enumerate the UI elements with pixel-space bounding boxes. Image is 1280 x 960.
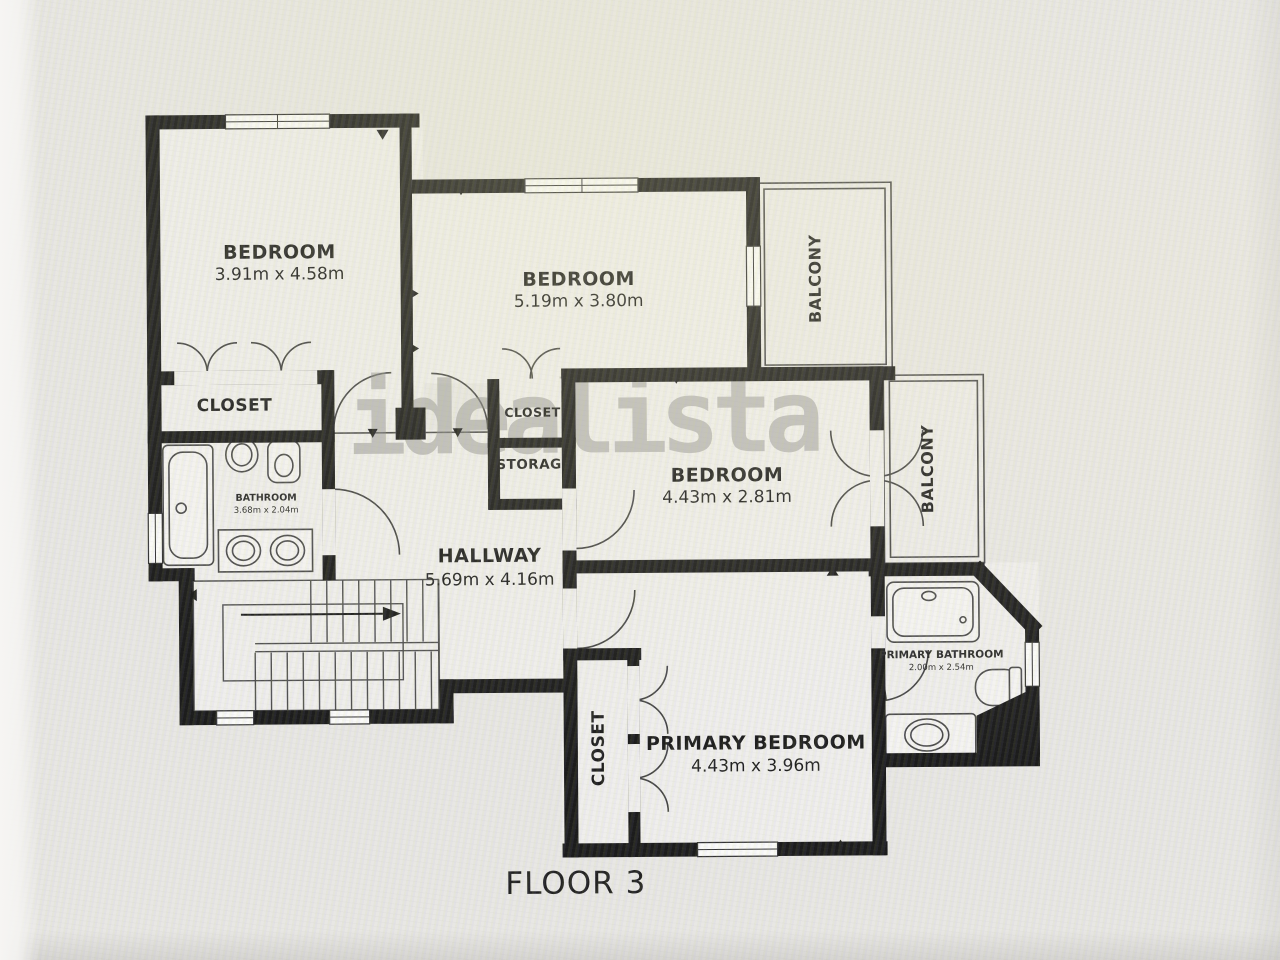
- bathtub-icon: [163, 445, 214, 565]
- bedroom2-window: [525, 178, 638, 193]
- stairs-window-right: [330, 710, 370, 724]
- bedroom1-window: [225, 114, 329, 129]
- balcony-side-label: BALCONY: [918, 425, 938, 514]
- bedroom2-label: BEDROOM: [522, 268, 635, 291]
- bedroom3-dims: 4.43m x 2.81m: [662, 487, 792, 508]
- primary-bathroom-label: PRIMARY BATHROOM: [879, 648, 1004, 661]
- bathroom-label: BATHROOM: [235, 492, 296, 503]
- primary-bathroom-window: [1025, 642, 1039, 686]
- hallway-label: HALLWAY: [438, 545, 542, 568]
- primary-bathroom-dims: 2.00m x 2.54m: [909, 663, 974, 673]
- primary-bathtub-icon: [887, 582, 979, 643]
- primary-bedroom-label: PRIMARY BEDROOM: [646, 731, 866, 755]
- closet-bedroom-label: CLOSET: [197, 396, 273, 417]
- bathroom-dims: 3.68m x 2.04m: [234, 505, 299, 515]
- floor-plan: idealista: [0, 0, 1280, 960]
- bedroom2-dims: 5.19m x 3.80m: [514, 291, 644, 312]
- floor-label: FLOOR 3: [505, 865, 646, 902]
- primary-bedroom-window: [698, 842, 778, 857]
- closet-primary-label: CLOSET: [589, 710, 610, 786]
- hallway-dims: 5.69m x 4.16m: [425, 570, 555, 591]
- bedroom1-dims: 3.91m x 4.58m: [215, 264, 345, 285]
- closet-hall-label: CLOSET: [504, 405, 560, 420]
- bathroom-window: [148, 513, 162, 563]
- primary-bedroom-dims: 4.43m x 3.96m: [691, 756, 821, 777]
- screen-photo: idealista: [0, 0, 1280, 960]
- bedroom3-label: BEDROOM: [671, 464, 784, 487]
- stairs-window-left: [217, 711, 254, 725]
- double-sink-icon: [218, 529, 312, 572]
- balcony-top-label: BALCONY: [805, 234, 825, 323]
- bidet-icon: [268, 440, 300, 482]
- bedroom1-label: BEDROOM: [223, 241, 336, 264]
- floor-plan-container: idealista: [0, 0, 1280, 960]
- bedroom2-balcony-door: [746, 246, 760, 306]
- storage-label: STORAGE: [496, 456, 571, 473]
- primary-sink-icon: [886, 714, 976, 757]
